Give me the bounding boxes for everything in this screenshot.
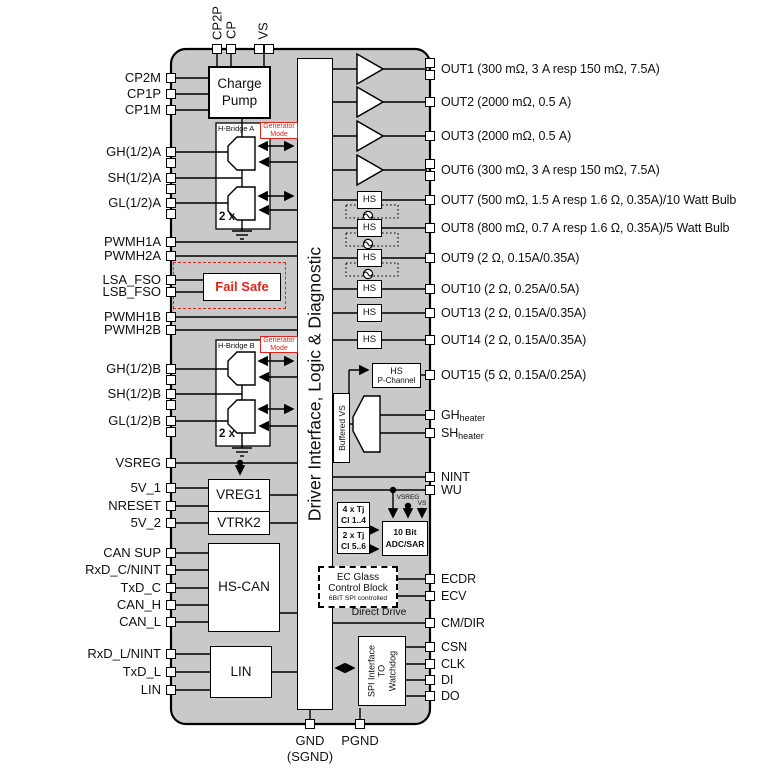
pin-gh-1-2-a: [166, 147, 176, 157]
hs-can-block: HS-CAN: [208, 543, 280, 632]
pin-label-text: GH: [441, 408, 460, 422]
pin-label-rxd-l-nint: RxD_L/NINT: [87, 646, 161, 662]
pin-label-ecdr: ECDR: [441, 571, 476, 587]
ec-glass-line3: 6BIT SPI controlled: [329, 595, 387, 603]
pin-label-text: OUT15 (5 Ω, 0.15A/0.25A): [441, 368, 586, 382]
pin-pgnd: [355, 719, 365, 729]
hs-p-channel-line1: HS: [390, 366, 403, 376]
pin-label-wu: WU: [441, 482, 462, 498]
pin-label-text: CM/DIR: [441, 616, 485, 630]
pin-rxd-c-nint: [166, 565, 176, 575]
buffered-vs-block: Buffered VS: [333, 393, 350, 463]
pin-label-do: DO: [441, 688, 460, 704]
vs-supply-tag: VS: [413, 500, 431, 507]
hs-switch-out10: HS: [357, 280, 382, 298]
pin-label-text: SH: [441, 426, 458, 440]
pin-out6-300-m-3-a-resp-150-m-7-5a: [425, 171, 435, 181]
pin-label-can-l: CAN_L: [119, 614, 161, 630]
spi-line1: SPI Interface: [366, 645, 376, 697]
pin-label-text: OUT1 (300 mΩ, 3 A resp 150 mΩ, 7.5A): [441, 62, 660, 76]
pin-label-text: DO: [441, 689, 460, 703]
pin-label-can-sup: CAN SUP: [103, 545, 161, 561]
pin-label-cp1m: CP1M: [125, 102, 161, 118]
ec-glass-block: EC Glass Control Block 6BIT SPI controll…: [318, 566, 398, 608]
tj-sensors-1-block: 4 x Tj Cl 1..4: [337, 502, 370, 528]
pin-label-text: OUT10 (2 Ω, 0.25A/0.5A): [441, 282, 579, 296]
driver-interface-label: Driver Interface, Logic & Diagnostic: [305, 247, 326, 521]
pin-out13-2-0-15a-0-35a: [425, 308, 435, 318]
pin-can-h: [166, 600, 176, 610]
pin-label-sh-1-2-b: SH(1/2)B: [108, 386, 161, 402]
pin-label-text: OUT8 (800 mΩ, 0.7 A resp 1.6 Ω, 0.35A)/5…: [441, 221, 729, 235]
pin-label-gh-heater: GHheater: [441, 407, 485, 426]
generator-mode-tag-a: Generator Mode: [260, 122, 298, 139]
pin-label-out15-5-0-15a-0-25a: OUT15 (5 Ω, 0.15A/0.25A): [441, 367, 586, 383]
pin-clk: [425, 659, 435, 669]
hs-switch-out9: HS: [357, 249, 382, 267]
pin-label-subscript: heater: [460, 413, 486, 423]
pin-txd-c: [166, 583, 176, 593]
pin-label-text: OUT9 (2 Ω, 0.15A/0.35A): [441, 251, 579, 265]
pin-label-vsreg: VSREG: [115, 455, 161, 471]
pin-gl-1-2-a: [166, 209, 176, 219]
pin-gl-1-2-a: [166, 198, 176, 208]
pin-label-out1-300-m-3-a-resp-150-m-7-5a: OUT1 (300 mΩ, 3 A resp 150 mΩ, 7.5A): [441, 61, 660, 77]
pin-label-sh-heater: SHheater: [441, 425, 484, 444]
pin-label-out2-2000-m-0-5-a: OUT2 (2000 mΩ, 0.5 A): [441, 94, 571, 110]
pin-label-subscript: heater: [458, 431, 484, 441]
hs-switch-out14: HS: [357, 331, 382, 349]
pin-gl-1-2-b: [166, 427, 176, 437]
spi-watchdog-block: SPI Interface TO Watchdog: [358, 636, 406, 706]
fail-safe-block: Fail Safe: [203, 273, 281, 301]
pin-cp1m: [166, 105, 176, 115]
pin-sh-1-2-a: [166, 173, 176, 183]
pin-ecv: [425, 591, 435, 601]
pin-label-cp: CP: [224, 21, 239, 39]
pin-label-text: OUT7 (500 mΩ, 1.5 A resp 1.6 Ω, 0.35A)/1…: [441, 193, 736, 207]
pin-vs-2: [264, 44, 274, 54]
mosfet-symbol: [228, 352, 255, 385]
pin-label-can-h: CAN_H: [117, 597, 161, 613]
pin-sh-1-2-a: [166, 184, 176, 194]
pin-label-txd-c: TxD_C: [121, 580, 161, 596]
pin-label-out14-2-0-15a-0-35a: OUT14 (2 Ω, 0.15A/0.35A): [441, 332, 586, 348]
vtrk2-block: VTRK2: [208, 511, 270, 535]
pin-vs-1: [254, 44, 264, 54]
pgnd-label: PGND: [327, 733, 393, 748]
pin-pwmh1a: [166, 237, 176, 247]
pin-label-cm-dir: CM/DIR: [441, 615, 485, 631]
pin-label-cp2m: CP2M: [125, 70, 161, 86]
pin-pwmh1b: [166, 312, 176, 322]
pin-label-clk: CLK: [441, 656, 465, 672]
spi-watchdog-label: SPI Interface TO Watchdog: [366, 645, 397, 697]
pin-gh-1-2-a: [166, 158, 176, 168]
adc-block: 10 Bit ADC/SAR: [382, 521, 428, 556]
pin-out8-800-m-0-7-a-resp-1-6-0-35a-5-watt-bulb: [425, 223, 435, 233]
pin-sh: [425, 428, 435, 438]
spi-line3: Watchdog: [387, 645, 397, 697]
pin-txd-l: [166, 667, 176, 677]
pin-label-text: OUT2 (2000 mΩ, 0.5 A): [441, 95, 571, 109]
pin-5v-2: [166, 518, 176, 528]
pin-out14-2-0-15a-0-35a: [425, 335, 435, 345]
pin-csn: [425, 642, 435, 652]
pin-cp2m: [166, 73, 176, 83]
pin-pwmh2b: [166, 325, 176, 335]
tj2-line2: Cl 5..6: [341, 541, 366, 552]
pin-label-gh-1-2-a: GH(1/2)A: [106, 144, 161, 160]
pin-label-text: CSN: [441, 640, 467, 654]
pin-out2-2000-m-0-5-a: [425, 97, 435, 107]
pin-label-out13-2-0-15a-0-35a: OUT13 (2 Ω, 0.15A/0.35A): [441, 305, 586, 321]
spi-line2: TO: [377, 645, 387, 697]
pin-lsb-fso: [166, 287, 176, 297]
pin-label-cp1p: CP1P: [127, 86, 161, 102]
pin-do: [425, 691, 435, 701]
pin-label-di: DI: [441, 672, 453, 688]
pin-label-5v-2: 5V_2: [131, 515, 161, 531]
charge-pump-block: Charge Pump: [208, 66, 271, 119]
gnd-label-line2: (SGND): [275, 749, 345, 765]
adc-line1: 10 Bit: [393, 527, 416, 538]
pin-label-text: OUT13 (2 Ω, 0.15A/0.35A): [441, 306, 586, 320]
pin-label-lin: LIN: [141, 682, 161, 698]
pin-label-text: OUT14 (2 Ω, 0.15A/0.35A): [441, 333, 586, 347]
pin-gh-1-2-b: [166, 364, 176, 374]
pin-label-rxd-c-nint: RxD_C/NINT: [85, 562, 161, 578]
adc-line2: ADC/SAR: [386, 539, 425, 550]
h-bridge-b-2x-label: 2 x: [219, 428, 235, 440]
generator-mode-tag-b: Generator Mode: [260, 336, 298, 353]
pin-out15-5-0-15a-0-25a: [425, 370, 435, 380]
pin-gnd: [305, 719, 315, 729]
pin-ecdr: [425, 574, 435, 584]
pin-wu: [425, 485, 435, 495]
h-bridge-a-label: H-Bridge A: [218, 125, 254, 133]
pin-label-text: DI: [441, 673, 453, 687]
pin-label-vs: VS: [256, 22, 271, 39]
pin-label-ecv: ECV: [441, 588, 466, 604]
pin-cp: [226, 44, 236, 54]
pin-gh: [425, 410, 435, 420]
pin-label-cp2p: CP2P: [210, 6, 225, 40]
pin-rxd-l-nint: [166, 649, 176, 659]
block-diagram: Driver Interface, Logic & Diagnostic Cha…: [0, 0, 775, 774]
pin-can-sup: [166, 548, 176, 558]
pin-label-text: OUT3 (2000 mΩ, 0.5 A): [441, 129, 571, 143]
pin-di: [425, 675, 435, 685]
pin-nreset: [166, 501, 176, 511]
pin-label-out6-300-m-3-a-resp-150-m-7-5a: OUT6 (300 mΩ, 3 A resp 150 mΩ, 7.5A): [441, 162, 660, 178]
pin-pwmh2a: [166, 251, 176, 261]
tj1-line1: 4 x Tj: [343, 504, 365, 515]
pin-lin: [166, 685, 176, 695]
pin-label-gh-1-2-b: GH(1/2)B: [106, 361, 161, 377]
pin-out6-300-m-3-a-resp-150-m-7-5a: [425, 159, 435, 169]
ec-glass-line1: EC Glass: [337, 572, 379, 584]
pin-out10-2-0-25a-0-5a: [425, 284, 435, 294]
mosfet-symbol: [228, 137, 255, 170]
pin-label-out10-2-0-25a-0-5a: OUT10 (2 Ω, 0.25A/0.5A): [441, 281, 579, 297]
pin-vsreg: [166, 458, 176, 468]
pin-lsa-fso: [166, 275, 176, 285]
pin-label-txd-l: TxD_L: [123, 664, 161, 680]
pin-5v-1: [166, 483, 176, 493]
pin-label-out9-2-0-15a-0-35a: OUT9 (2 Ω, 0.15A/0.35A): [441, 250, 579, 266]
pin-can-l: [166, 617, 176, 627]
pin-label-5v-1: 5V_1: [131, 480, 161, 496]
pin-label-text: WU: [441, 483, 462, 497]
pin-label-out7-500-m-1-5-a-resp-1-6-0-35a-10-watt-bulb: OUT7 (500 mΩ, 1.5 A resp 1.6 Ω, 0.35A)/1…: [441, 192, 736, 208]
pin-label-gl-1-2-b: GL(1/2)B: [108, 413, 161, 429]
vreg1-block: VREG1: [208, 479, 270, 512]
hs-p-channel-block: HS P-Channel: [372, 363, 421, 388]
h-bridge-a-2x-label: 2 x: [219, 211, 235, 223]
pin-label-nreset: NRESET: [108, 498, 161, 514]
pin-label-sh-1-2-a: SH(1/2)A: [108, 170, 161, 186]
pin-label-text: ECDR: [441, 572, 476, 586]
pin-sh-1-2-b: [166, 400, 176, 410]
pin-cp2p: [212, 44, 222, 54]
pin-out9-2-0-15a-0-35a: [425, 253, 435, 263]
hs-switch-out13: HS: [357, 304, 382, 322]
pin-label-csn: CSN: [441, 639, 467, 655]
pin-label-out8-800-m-0-7-a-resp-1-6-0-35a-5-watt-bulb: OUT8 (800 mΩ, 0.7 A resp 1.6 Ω, 0.35A)/5…: [441, 220, 729, 236]
pin-out7-500-m-1-5-a-resp-1-6-0-35a-10-watt-bulb: [425, 195, 435, 205]
pin-cp1p: [166, 89, 176, 99]
hs-switch-out8: HS: [357, 219, 382, 237]
ec-glass-line2: Control Block: [328, 583, 387, 595]
hs-switch-out7: HS: [357, 191, 382, 209]
direct-drive-label: Direct Drive: [336, 608, 422, 616]
pin-label-pwmh2a: PWMH2A: [104, 248, 161, 264]
pin-label-text: CLK: [441, 657, 465, 671]
driver-interface-block: Driver Interface, Logic & Diagnostic: [297, 58, 333, 710]
pin-label-text: OUT6 (300 mΩ, 3 A resp 150 mΩ, 7.5A): [441, 163, 660, 177]
pin-label-lsb-fso: LSB_FSO: [102, 284, 161, 300]
pin-out3-2000-m-0-5-a: [425, 131, 435, 141]
pin-nint: [425, 472, 435, 482]
hs-p-channel-line2: P-Channel: [378, 376, 416, 385]
h-bridge-b-label: H-Bridge B: [218, 342, 255, 350]
pin-out1-300-m-3-a-resp-150-m-7-5a: [425, 58, 435, 68]
pin-label-text: ECV: [441, 589, 466, 603]
pin-gh-1-2-b: [166, 375, 176, 385]
pin-label-gl-1-2-a: GL(1/2)A: [108, 195, 161, 211]
pin-label-pwmh2b: PWMH2B: [104, 322, 161, 338]
pin-sh-1-2-b: [166, 389, 176, 399]
pin-label-out3-2000-m-0-5-a: OUT3 (2000 mΩ, 0.5 A): [441, 128, 571, 144]
pin-cm-dir: [425, 618, 435, 628]
lin-block: LIN: [210, 646, 272, 698]
buffered-vs-label: Buffered VS: [336, 405, 346, 451]
tj-sensors-2-block: 2 x Tj Cl 5..6: [337, 527, 370, 554]
tj1-line2: Cl 1..4: [341, 515, 366, 526]
pin-out1-300-m-3-a-resp-150-m-7-5a: [425, 70, 435, 80]
tj2-line1: 2 x Tj: [343, 530, 365, 541]
pin-gl-1-2-b: [166, 416, 176, 426]
